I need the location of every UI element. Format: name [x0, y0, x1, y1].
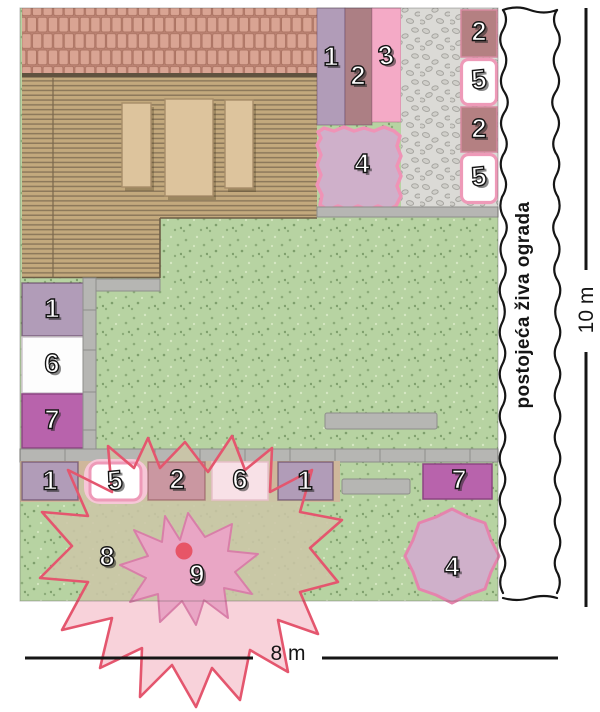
- stepping-slab-b: [342, 479, 410, 494]
- bench-left: [122, 103, 151, 187]
- zone-marker-bed-1-top: 1: [323, 44, 338, 71]
- bench-right: [225, 100, 253, 188]
- zone-marker-bed-7-bottom: 7: [451, 467, 466, 494]
- zone-marker-bed-1-left: 1: [44, 296, 59, 323]
- house-roof: [22, 8, 317, 78]
- roof-tiles: [22, 8, 317, 73]
- zone-marker-bed-1-bottom-b: 1: [297, 468, 312, 495]
- zone-marker-bed-2-right-a: 2: [471, 19, 486, 46]
- zone-marker-bed-6-bottom: 6: [232, 467, 247, 494]
- vertical-slab-path: [83, 278, 96, 450]
- plant-9-center-dot: [176, 543, 193, 560]
- zone-marker-bed-5-right-a: 5: [470, 66, 488, 94]
- zone-marker-plant-9: 9: [189, 562, 204, 589]
- roof-eave-line: [22, 73, 317, 78]
- garden-plan-figure: 1 2 3 4 2 5 2 5 1 6 7 1 5 2 6 1 7 8 9 4 …: [0, 0, 600, 712]
- hedge-right-edge: [552, 10, 560, 593]
- hedge-bottom-cap: [503, 596, 557, 600]
- zone-marker-bed-6-left: 6: [44, 351, 59, 378]
- zone-marker-bed-1-bottom-a: 1: [42, 468, 57, 495]
- deck-edge-slab: [96, 279, 160, 291]
- zone-marker-bed-5-right-b: 5: [470, 163, 488, 191]
- garden-furniture: [122, 99, 256, 200]
- table: [165, 99, 213, 196]
- zone-marker-bed-2-bottom: 2: [169, 467, 184, 494]
- stepping-slab-a: [325, 413, 437, 429]
- zone-marker-canopy-8: 8: [99, 544, 114, 571]
- zone-marker-bed-2-top: 2: [350, 63, 365, 90]
- hedge-left-edge: [500, 10, 508, 593]
- zone-marker-bed-5-bottom: 5: [106, 467, 124, 495]
- height-dim-label: 10 m: [575, 287, 599, 334]
- zone-marker-bed-4-bottom: 4: [444, 554, 459, 581]
- zone-marker-bed-7-left: 7: [44, 407, 59, 434]
- width-dim-label: 8 m: [270, 642, 305, 666]
- zone-marker-bed-4-top: 4: [354, 151, 369, 178]
- garden-plan-drawing: [0, 0, 600, 712]
- hedge-label: postojeća živa ograda: [513, 202, 535, 409]
- hedge-top-cap: [503, 8, 557, 13]
- zone-marker-bed-2-right-b: 2: [471, 116, 486, 143]
- paving-edge-strip: [317, 207, 498, 217]
